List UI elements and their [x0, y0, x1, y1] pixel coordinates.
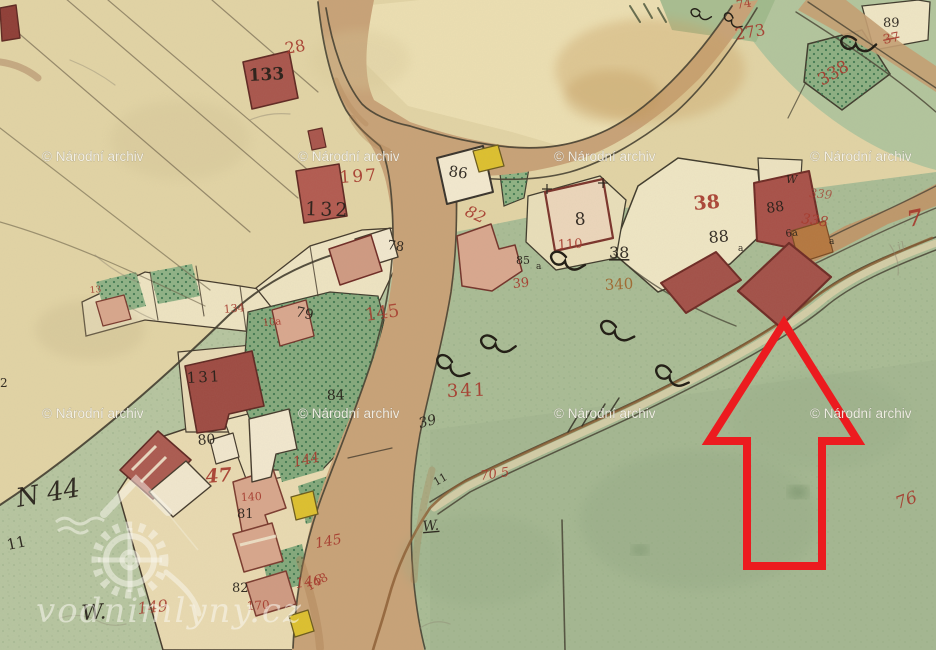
archive-watermark: © Národní archiv: [298, 406, 400, 421]
parcel-label-6a: 6a: [785, 227, 799, 240]
archive-watermark: © Národní archiv: [554, 149, 656, 164]
parcel-label-132: 132: [305, 198, 351, 222]
archive-watermark: © Národní archiv: [554, 406, 656, 421]
parcel-label-110: 110: [557, 237, 583, 253]
parcel-label-a: a: [536, 262, 542, 272]
parcel-label-140: 140: [240, 490, 262, 504]
parcel-label-134: 134: [223, 301, 245, 316]
parcel-label-89: 89: [883, 16, 900, 31]
archive-watermark: © Národní archiv: [298, 149, 400, 164]
parcel-label-339: 339: [809, 186, 833, 202]
parcel-label-133: 133: [248, 64, 284, 86]
parcel-label-10a: 10a: [262, 316, 282, 329]
parcel-label-88: 88: [708, 226, 730, 247]
archive-watermark: © Národní archiv: [810, 149, 912, 164]
archive-watermark: © Národní archiv: [810, 406, 912, 421]
cadastral-map-screenshot: 13313286885a7879848081821313888a886aa89W…: [0, 0, 936, 650]
parcel-label-a: a: [738, 244, 744, 254]
parcel-label-80: 80: [197, 431, 216, 448]
parcel-label-340: 340: [604, 275, 634, 294]
paper-grain-texture: [0, 0, 936, 650]
parcel-label-341: 341: [446, 380, 487, 402]
parcel-label-85: 85: [516, 254, 530, 267]
archive-watermark: © Národní archiv: [42, 149, 144, 164]
parcel-label-W_: W.: [422, 518, 440, 535]
parcel-label-8: 8: [574, 209, 586, 230]
parcel-label-38: 38: [609, 243, 629, 262]
parcel-label-88: 88: [765, 199, 785, 217]
parcel-label-84: 84: [327, 387, 345, 404]
parcel-label-39: 39: [512, 276, 530, 292]
site-watermark: vodnimlyny.cz: [36, 591, 303, 631]
archive-watermark: © Národní archiv: [42, 406, 144, 421]
parcel-label-a: a: [829, 237, 835, 247]
parcel-label-86: 86: [447, 162, 468, 182]
parcel-label-13: 13: [89, 285, 102, 296]
parcel-label-131: 131: [186, 367, 222, 387]
parcel-label-81: 81: [237, 507, 254, 522]
map-canvas: 13313286885a7879848081821313888a886aa89W…: [0, 0, 936, 650]
parcel-label-W: W: [786, 173, 799, 186]
parcel-label-47: 47: [205, 464, 233, 488]
parcel-label-38: 38: [693, 191, 721, 215]
parcel-label-197: 197: [339, 165, 379, 188]
parcel-label-78: 78: [386, 238, 404, 255]
parcel-label-28: 28: [283, 36, 306, 58]
parcel-label-2: 2: [0, 376, 8, 390]
